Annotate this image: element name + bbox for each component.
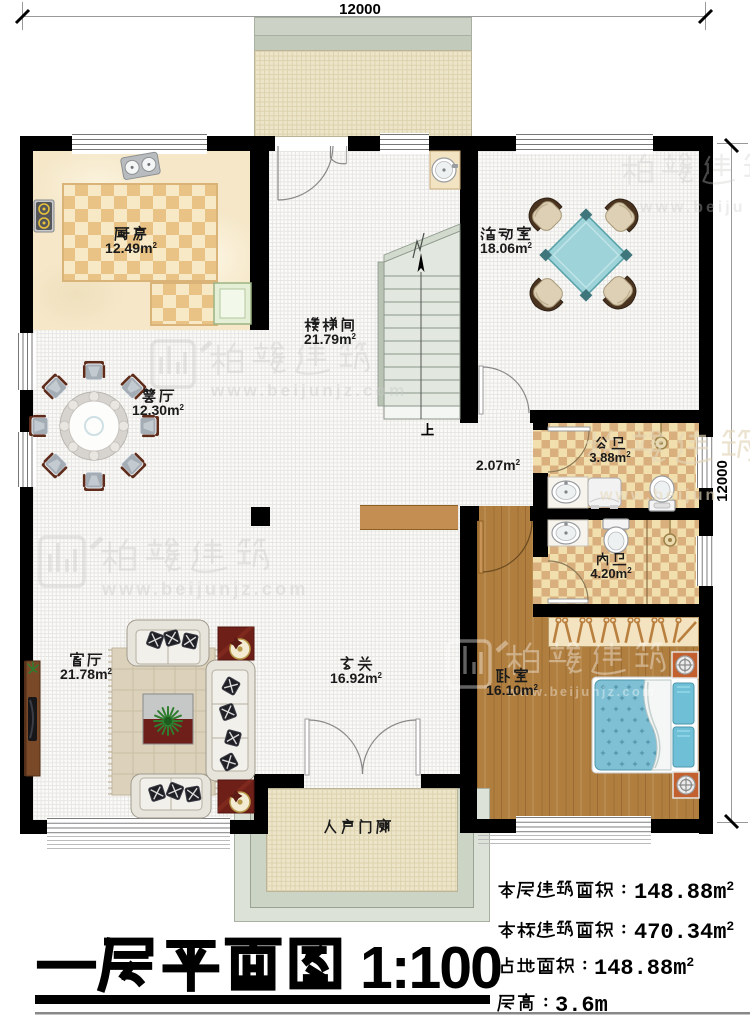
svg-text:2.07m2: 2.07m2 — [476, 457, 521, 473]
svg-text:21.79m2: 21.79m2 — [304, 331, 356, 347]
svg-text:www.beiju: www.beiju — [639, 199, 746, 216]
svg-text:148.88m2: 148.88m2 — [594, 955, 694, 981]
svg-text:16.92m2: 16.92m2 — [330, 670, 382, 686]
svg-text:3.6m: 3.6m — [555, 993, 608, 1018]
svg-text:21.78m2: 21.78m2 — [60, 666, 112, 682]
svg-text:12.49m2: 12.49m2 — [105, 240, 157, 256]
svg-text:3.88m2: 3.88m2 — [589, 450, 631, 465]
svg-text:1:100: 1:100 — [360, 935, 501, 1001]
svg-text:4.20m2: 4.20m2 — [590, 566, 632, 581]
svg-text:148.88m2: 148.88m2 — [634, 879, 734, 905]
svg-text:18.06m2: 18.06m2 — [480, 240, 532, 256]
svg-text:www.beijunjz.com: www.beijunjz.com — [101, 579, 309, 599]
svg-text:www.beijunjz.com: www.beijunjz.com — [210, 381, 407, 400]
svg-text:www.beijun: www.beijun — [599, 487, 718, 504]
svg-text:12.30m2: 12.30m2 — [132, 402, 184, 418]
svg-text:16.10m2: 16.10m2 — [486, 682, 538, 698]
svg-text:470.34m2: 470.34m2 — [634, 919, 734, 945]
